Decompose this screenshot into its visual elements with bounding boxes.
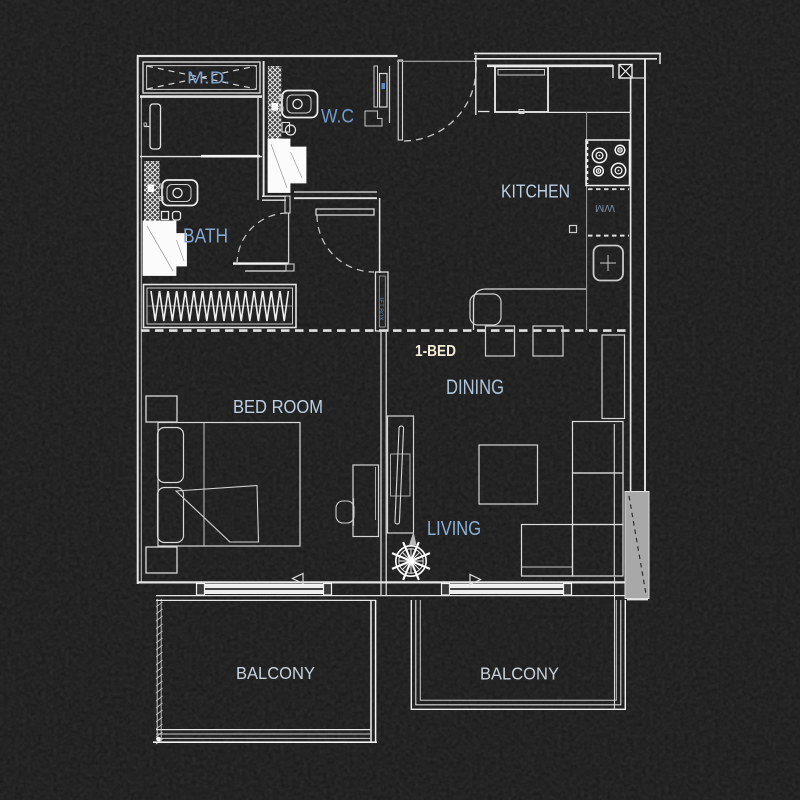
svg-text:KITCHEN: KITCHEN xyxy=(501,181,570,202)
svg-text:BED ROOM: BED ROOM xyxy=(233,396,323,417)
svg-text:M.D.: M.D. xyxy=(187,68,230,88)
svg-text:BALCONY: BALCONY xyxy=(480,664,559,684)
svg-text:WM: WM xyxy=(595,202,615,214)
svg-text:BALCONY: BALCONY xyxy=(236,663,315,683)
svg-text:1-BED: 1-BED xyxy=(415,343,456,360)
svg-text:W.C: W.C xyxy=(321,106,354,128)
svg-text:BATH: BATH xyxy=(183,225,228,248)
svg-text:DINING: DINING xyxy=(446,376,504,399)
svg-text:LIVING: LIVING xyxy=(427,517,481,540)
svg-text:JET BOX: JET BOX xyxy=(377,297,384,322)
